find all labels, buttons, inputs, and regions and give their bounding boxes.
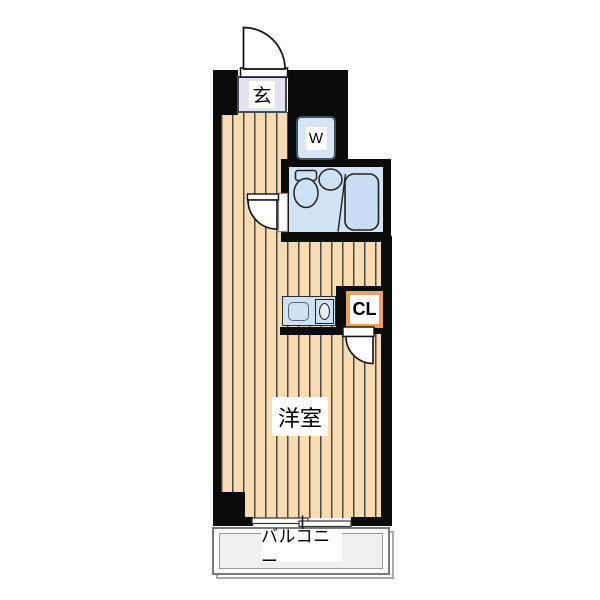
room-label: 洋室 bbox=[272, 397, 328, 436]
kitchen-counter bbox=[282, 296, 336, 326]
closet-label: CL bbox=[346, 291, 383, 328]
entrance-mat: 玄 bbox=[237, 76, 287, 113]
kitchen-sink-icon bbox=[288, 302, 309, 321]
entry-door-swing-icon bbox=[244, 28, 286, 70]
exterior-cutout bbox=[348, 70, 403, 159]
washing-machine: W bbox=[296, 116, 336, 160]
entrance-label: 玄 bbox=[249, 81, 275, 108]
washing-machine-label: W bbox=[306, 127, 327, 150]
stove-burner-icon bbox=[319, 303, 330, 320]
floorplan-canvas: W 玄 CL バルコニー bbox=[0, 0, 600, 600]
closet: CL bbox=[336, 286, 392, 334]
balcony-label: バルコニー bbox=[261, 531, 342, 562]
stove-icon bbox=[315, 299, 334, 324]
bathroom-unit bbox=[289, 167, 383, 232]
wall-bottom-left bbox=[213, 517, 253, 526]
wall-kitchen bbox=[280, 327, 344, 335]
wall-left bbox=[213, 70, 221, 525]
wall-right bbox=[381, 236, 392, 526]
